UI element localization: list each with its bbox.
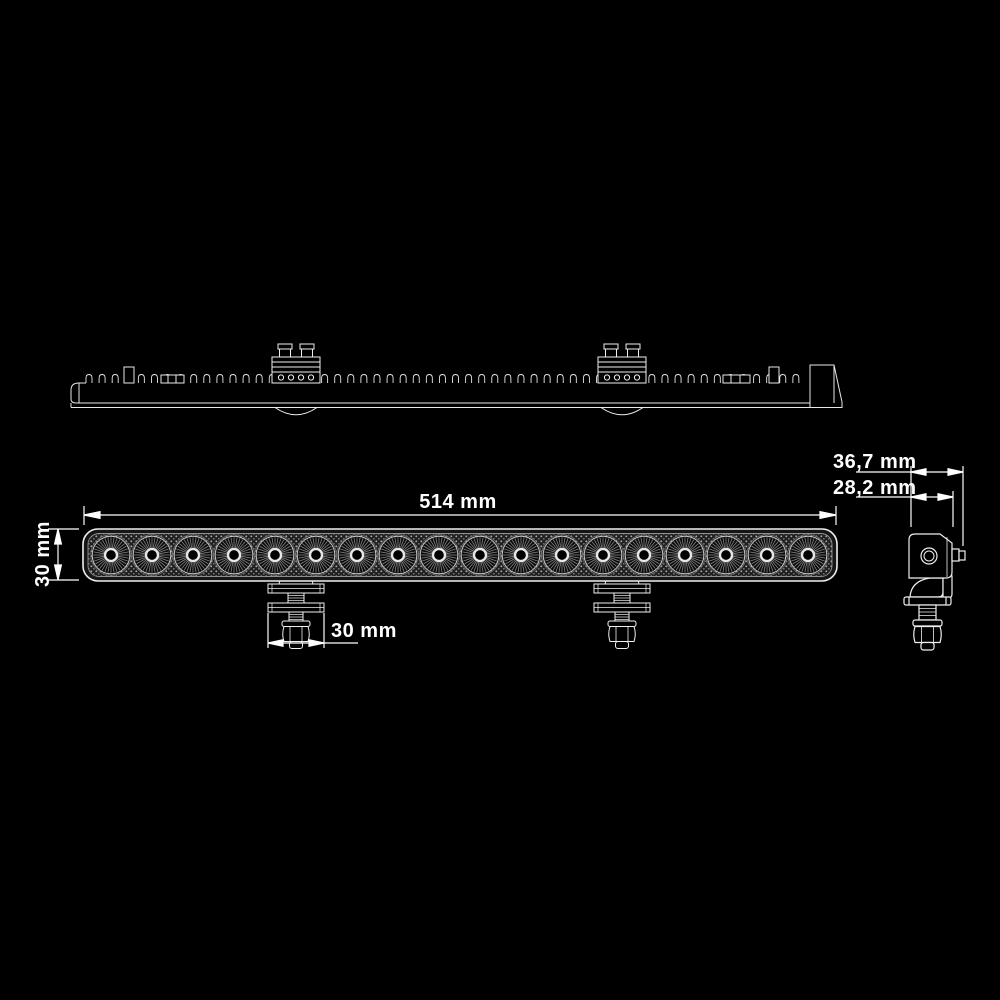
dim-label-bracket-width: 30 mm — [331, 621, 397, 641]
dim-label-depth-overall: 36,7 mm — [833, 452, 917, 472]
led-reflector — [255, 535, 296, 576]
front-bracket — [268, 573, 324, 649]
led-reflector — [665, 535, 706, 576]
side-view-bracket — [904, 574, 952, 650]
led-reflector — [419, 535, 460, 576]
end-block — [810, 365, 842, 408]
led-reflector — [624, 535, 665, 576]
tall-fin — [769, 367, 779, 383]
heatsink-fins — [86, 375, 799, 384]
side-bolt — [913, 605, 942, 650]
led-reflector — [173, 535, 214, 576]
led-reflector — [706, 535, 747, 576]
top-view-body — [71, 383, 810, 403]
led-reflector — [337, 535, 378, 576]
front-bracket — [594, 573, 650, 649]
side-connector-inner — [924, 551, 934, 561]
led-reflector — [214, 535, 255, 576]
drawing-svg — [0, 0, 1000, 1000]
top-view — [71, 344, 842, 415]
led-reflector — [788, 535, 829, 576]
technical-drawing: 514 mm 30 mm 30 mm 36,7 mm 28,2 mm — [0, 0, 1000, 1000]
dim-label-length: 514 mm — [419, 492, 497, 512]
led-reflector — [583, 535, 624, 576]
side-tab-end — [959, 551, 965, 560]
led-reflector — [132, 535, 173, 576]
led-reflector — [460, 535, 501, 576]
led-reflector — [542, 535, 583, 576]
dim-label-depth-body: 28,2 mm — [833, 478, 917, 498]
led-reflector — [296, 535, 337, 576]
led-reflector — [501, 535, 542, 576]
top-bracket — [272, 344, 320, 415]
dim-label-height: 30 mm — [33, 521, 53, 587]
top-bracket — [598, 344, 646, 415]
led-reflector — [378, 535, 419, 576]
front-view-brackets — [268, 573, 650, 649]
side-tab — [952, 549, 959, 561]
led-reflector — [747, 535, 788, 576]
top-view-brackets — [272, 344, 646, 415]
side-view — [904, 534, 965, 650]
tall-fin — [124, 367, 134, 383]
led-reflector — [91, 535, 132, 576]
front-view — [83, 529, 837, 581]
